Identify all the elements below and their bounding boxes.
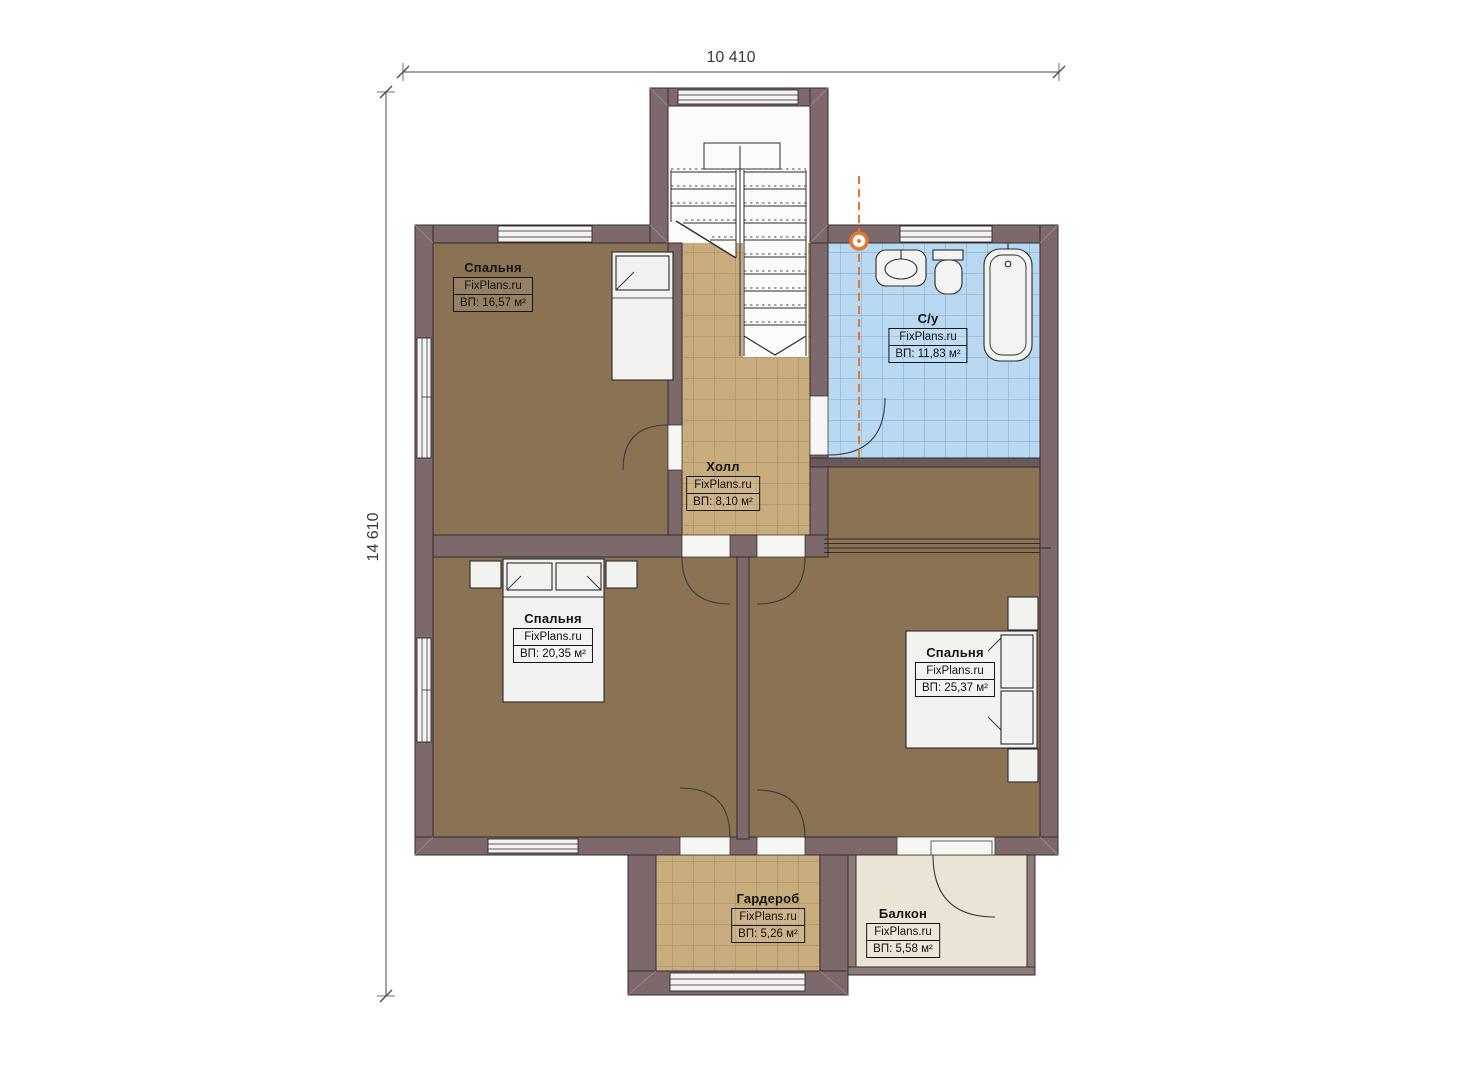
room-info-plate: FixPlans.ru ВП: 11,83 м² xyxy=(888,328,967,363)
room-name: Спальня xyxy=(464,260,522,275)
room-name: С/у xyxy=(918,311,939,326)
dimension-height-label: 14 610 xyxy=(365,513,383,562)
door-wardrobe-left xyxy=(680,837,730,855)
nightstand-icon xyxy=(1008,749,1038,782)
room-label-wardrobe: Гардероб FixPlans.ru ВП: 5,26 м² xyxy=(731,891,805,943)
door-bedroom-tl xyxy=(668,425,682,470)
brand-watermark: FixPlans.ru xyxy=(916,663,994,679)
room-area: ВП: 11,83 м² xyxy=(889,345,966,362)
room-name: Балкон xyxy=(879,906,927,921)
bathtub-icon xyxy=(984,243,1032,361)
door-wardrobe-right xyxy=(757,837,805,855)
sink-icon xyxy=(876,250,926,286)
room-area: ВП: 8,10 м² xyxy=(687,493,759,510)
window-stairwell xyxy=(678,90,798,104)
brand-watermark: FixPlans.ru xyxy=(687,477,759,493)
brand-watermark: FixPlans.ru xyxy=(514,629,592,645)
room-label-bedroom-top-left: Спальня FixPlans.ru ВП: 16,57 м² xyxy=(453,260,533,312)
room-label-bedroom-right: Спальня FixPlans.ru ВП: 25,37 м² xyxy=(915,645,995,697)
door-bedroom-r xyxy=(757,535,805,557)
door-bedroom-bl xyxy=(682,535,730,557)
room-info-plate: FixPlans.ru ВП: 20,35 м² xyxy=(513,628,593,663)
room-area: ВП: 16,57 м² xyxy=(454,294,532,311)
floor-bedroom-right-2 xyxy=(749,557,828,837)
nightstand-icon xyxy=(470,561,501,588)
room-label-bathroom: С/у FixPlans.ru ВП: 11,83 м² xyxy=(888,311,967,363)
room-info-plate: FixPlans.ru ВП: 8,10 м² xyxy=(686,476,760,511)
toilet-icon xyxy=(933,250,963,294)
room-name: Холл xyxy=(706,459,739,474)
room-name: Гардероб xyxy=(736,891,799,906)
room-info-plate: FixPlans.ru ВП: 5,26 м² xyxy=(731,908,805,943)
door-bathroom xyxy=(810,396,828,455)
door-balcony-leaf xyxy=(931,841,992,855)
room-info-plate: FixPlans.ru ВП: 16,57 м² xyxy=(453,277,533,312)
window-left-upper xyxy=(417,338,431,458)
brand-watermark: FixPlans.ru xyxy=(454,278,532,294)
room-name: Спальня xyxy=(926,645,984,660)
nightstand-icon xyxy=(1008,597,1038,630)
room-info-plate: FixPlans.ru ВП: 5,58 м² xyxy=(866,923,940,958)
room-label-hall: Холл FixPlans.ru ВП: 8,10 м² xyxy=(686,459,760,511)
window-bottom-left xyxy=(488,839,578,853)
bed-single-icon xyxy=(612,252,673,380)
room-area: ВП: 25,37 м² xyxy=(916,679,994,696)
brand-watermark: FixPlans.ru xyxy=(889,329,966,345)
brand-watermark: FixPlans.ru xyxy=(732,909,804,925)
window-wardrobe xyxy=(670,973,805,991)
room-label-balcony: Балкон FixPlans.ru ВП: 5,58 м² xyxy=(866,906,940,958)
floor-plan-page: 10 410 14 610 Спальня FixPlans.ru ВП: 16… xyxy=(0,0,1473,1080)
room-area: ВП: 5,58 м² xyxy=(867,940,939,957)
window-bathroom xyxy=(900,226,992,242)
room-label-bedroom-bottom-left: Спальня FixPlans.ru ВП: 20,35 м² xyxy=(513,611,593,663)
room-name: Спальня xyxy=(524,611,582,626)
room-info-plate: FixPlans.ru ВП: 25,37 м² xyxy=(915,662,995,697)
brand-watermark: FixPlans.ru xyxy=(867,924,939,940)
room-area: ВП: 5,26 м² xyxy=(732,925,804,942)
nightstand-icon xyxy=(606,561,637,588)
window-top-left xyxy=(498,226,592,242)
room-area: ВП: 20,35 м² xyxy=(514,645,592,662)
dimension-width-label: 10 410 xyxy=(707,49,756,67)
